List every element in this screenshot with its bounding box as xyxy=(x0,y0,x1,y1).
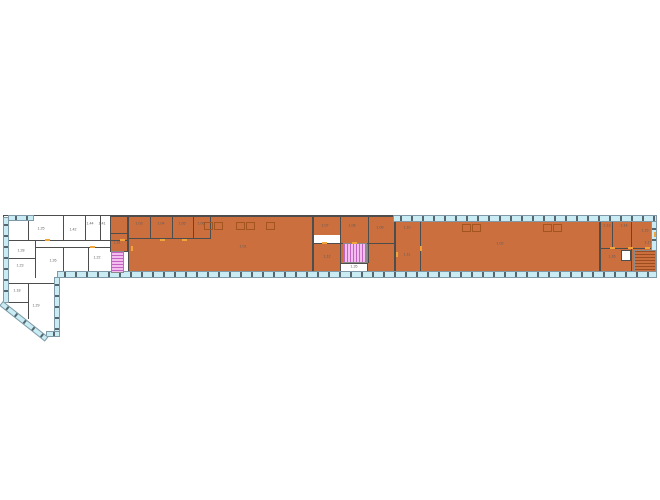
window-mullion-tick xyxy=(284,272,286,277)
window-mullion-tick xyxy=(504,272,506,277)
room-label: 1.17 xyxy=(644,241,651,245)
window-mullion-tick xyxy=(631,216,633,221)
window-mullion-tick xyxy=(97,272,99,277)
door-mark xyxy=(131,246,133,251)
window-mullion-tick xyxy=(174,272,176,277)
window-mullion-tick xyxy=(55,328,59,330)
wall xyxy=(368,216,369,263)
window-mullion-tick xyxy=(53,332,55,336)
window-mullion-tick xyxy=(422,216,424,221)
window-mullion-tick xyxy=(554,216,556,221)
window-mullion-tick xyxy=(251,272,253,277)
wall xyxy=(28,283,29,319)
room-label: 1.02 xyxy=(496,242,503,246)
window-mullion-tick xyxy=(559,272,561,277)
room-label: 1.04 xyxy=(157,222,164,226)
door-mark xyxy=(120,239,125,241)
window-mullion-tick xyxy=(55,295,59,297)
window-mullion-tick xyxy=(55,306,59,308)
wall xyxy=(193,216,194,239)
wall xyxy=(172,216,173,239)
room-label: 1.06 xyxy=(197,222,204,226)
room-label: 1.42 xyxy=(69,228,76,232)
door-mark xyxy=(628,247,633,249)
window-mullion-tick xyxy=(23,320,27,324)
wall xyxy=(631,248,632,272)
window-mullion-tick xyxy=(130,272,132,277)
open-office-east xyxy=(395,221,600,272)
window-mullion-tick xyxy=(515,272,517,277)
window-mullion-tick xyxy=(652,239,656,241)
window-mullion-tick xyxy=(4,235,8,237)
floor-plan: 1.251.421.441.411.261.221.281.231.181.29… xyxy=(0,0,660,500)
room-label: 1.13 xyxy=(603,224,610,228)
window-mullion-tick xyxy=(108,272,110,277)
window-mullion-tick xyxy=(471,272,473,277)
window-mullion-tick xyxy=(55,284,59,286)
window-mullion-tick xyxy=(460,272,462,277)
desk xyxy=(543,224,552,232)
wall xyxy=(612,221,613,249)
window-mullion-tick xyxy=(642,216,644,221)
room-label: 1.18 xyxy=(13,289,20,293)
window-mullion-tick xyxy=(5,306,9,310)
door-mark xyxy=(182,239,187,241)
wall xyxy=(8,240,128,241)
window-mullion-tick xyxy=(493,272,495,277)
door-mark xyxy=(610,247,615,249)
window-mullion-tick xyxy=(4,290,8,292)
room-label: 1.07 xyxy=(321,224,328,228)
room-label: 1.16 xyxy=(608,255,615,259)
window-mullion-tick xyxy=(614,272,616,277)
room-label: 1.11 xyxy=(404,253,411,257)
wall xyxy=(63,215,64,241)
wall xyxy=(85,215,86,241)
room-label: 1.08 xyxy=(348,224,355,228)
window-mullion-tick xyxy=(455,216,457,221)
window-mullion-tick xyxy=(521,216,523,221)
room-label: 1.29 xyxy=(32,304,39,308)
window-mullion-tick xyxy=(240,272,242,277)
wall xyxy=(340,216,341,273)
room-label: 1.25 xyxy=(37,227,44,231)
desk xyxy=(266,222,275,230)
room-label: 1.28 xyxy=(17,249,24,253)
wall xyxy=(631,221,632,249)
desk xyxy=(214,222,223,230)
wall xyxy=(128,238,211,239)
window-mullion-tick xyxy=(548,272,550,277)
window-mullion-tick xyxy=(75,272,77,277)
room-label: 1.01 xyxy=(239,245,246,249)
window-mullion-tick xyxy=(449,272,451,277)
window-mullion-tick xyxy=(537,272,539,277)
window-mullion-tick xyxy=(4,246,8,248)
window-mullion-tick xyxy=(4,279,8,281)
wall xyxy=(35,247,110,248)
window-mullion-tick xyxy=(31,327,35,331)
room-label: 1.31 xyxy=(113,241,120,245)
window-mullion-tick xyxy=(229,272,231,277)
window-mullion-tick xyxy=(532,216,534,221)
room-label: 1.03 xyxy=(135,222,142,226)
room-label: 1.41 xyxy=(98,222,105,226)
desk xyxy=(204,222,213,230)
window-mullion-tick xyxy=(598,216,600,221)
window-band-court xyxy=(54,277,60,334)
window-mullion-tick xyxy=(592,272,594,277)
window-band-top-west xyxy=(8,215,34,221)
wall xyxy=(3,215,395,216)
window-mullion-tick xyxy=(411,216,413,221)
window-mullion-tick xyxy=(499,216,501,221)
window-mullion-tick xyxy=(565,216,567,221)
window-mullion-tick xyxy=(273,272,275,277)
room-label: 1.26 xyxy=(49,259,56,263)
window-mullion-tick xyxy=(4,224,8,226)
window-mullion-tick xyxy=(141,272,143,277)
window-mullion-tick xyxy=(163,272,165,277)
room-label: 1.10 xyxy=(403,226,410,230)
window-mullion-tick xyxy=(526,272,528,277)
window-mullion-tick xyxy=(86,272,88,277)
window-mullion-tick xyxy=(339,272,341,277)
desk xyxy=(472,224,481,232)
desk xyxy=(553,224,562,232)
window-mullion-tick xyxy=(488,216,490,221)
door-mark xyxy=(322,242,327,244)
window-mullion-tick xyxy=(581,272,583,277)
room-label: 1.15 xyxy=(641,229,648,233)
window-mullion-tick xyxy=(15,216,17,220)
window-mullion-tick xyxy=(477,216,479,221)
window-mullion-tick xyxy=(647,272,649,277)
window-mullion-tick xyxy=(576,216,578,221)
window-mullion-tick xyxy=(427,272,429,277)
wall xyxy=(35,240,36,278)
window-mullion-tick xyxy=(207,272,209,277)
page: 1.251.421.441.411.261.221.281.231.181.29… xyxy=(0,0,660,500)
door-mark xyxy=(90,246,95,248)
window-band-top xyxy=(393,215,657,222)
room-label: 1.35 xyxy=(350,265,357,269)
window-mullion-tick xyxy=(317,272,319,277)
door-mark xyxy=(420,246,422,251)
door-mark xyxy=(160,239,165,241)
window-mullion-tick xyxy=(372,272,374,277)
wall xyxy=(100,215,101,241)
room-label: 1.23 xyxy=(16,264,23,268)
window-mullion-tick xyxy=(4,268,8,270)
window-mullion-tick xyxy=(185,272,187,277)
window-mullion-tick xyxy=(609,216,611,221)
door-mark xyxy=(352,242,357,244)
wall xyxy=(110,233,128,234)
service-rooms-west xyxy=(110,216,128,252)
door-mark xyxy=(654,232,656,237)
window-mullion-tick xyxy=(218,272,220,277)
window-mullion-tick xyxy=(4,257,8,259)
desk xyxy=(236,222,245,230)
window-mullion-tick xyxy=(625,272,627,277)
room-label: 1.22 xyxy=(93,256,100,260)
window-mullion-tick xyxy=(587,216,589,221)
staircase-east xyxy=(634,250,656,272)
window-mullion-tick xyxy=(295,272,297,277)
window-mullion-tick xyxy=(152,272,154,277)
desk xyxy=(246,222,255,230)
corridor-notch xyxy=(314,235,340,243)
room-label: 1.44 xyxy=(86,222,93,226)
window-mullion-tick xyxy=(433,216,435,221)
staircase-central xyxy=(343,243,367,263)
door-mark xyxy=(645,247,650,249)
room-label: 1.12 xyxy=(323,255,330,259)
window-mullion-tick xyxy=(196,272,198,277)
window-mullion-tick xyxy=(482,272,484,277)
window-mullion-tick xyxy=(306,272,308,277)
window-mullion-tick xyxy=(405,272,407,277)
window-mullion-tick xyxy=(603,272,605,277)
window-mullion-tick xyxy=(64,272,66,277)
window-mullion-tick xyxy=(394,272,396,277)
window-mullion-tick xyxy=(570,272,572,277)
window-mullion-tick xyxy=(466,216,468,221)
window-mullion-tick xyxy=(438,272,440,277)
window-mullion-tick xyxy=(400,216,402,221)
window-mullion-tick xyxy=(26,216,28,220)
window-mullion-tick xyxy=(636,272,638,277)
window-mullion-tick xyxy=(328,272,330,277)
window-mullion-tick xyxy=(350,272,352,277)
window-band-bottom xyxy=(57,271,657,278)
window-mullion-tick xyxy=(383,272,385,277)
room-label: 1.14 xyxy=(620,224,627,228)
elevator xyxy=(621,250,631,261)
room-label: 1.09 xyxy=(376,226,383,230)
window-mullion-tick xyxy=(543,216,545,221)
window-mullion-tick xyxy=(262,272,264,277)
window-mullion-tick xyxy=(652,228,656,230)
wall xyxy=(3,283,59,284)
window-mullion-tick xyxy=(361,272,363,277)
window-band-west xyxy=(3,217,9,303)
window-mullion-tick xyxy=(416,272,418,277)
window-mullion-tick xyxy=(55,317,59,319)
staircase-west xyxy=(111,251,124,273)
window-mullion-tick xyxy=(40,333,44,337)
window-mullion-tick xyxy=(14,313,18,317)
wall xyxy=(150,216,151,239)
room-label: 1.05 xyxy=(178,222,185,226)
door-mark xyxy=(45,239,50,241)
door-mark xyxy=(396,252,398,257)
window-mullion-tick xyxy=(510,216,512,221)
window-mullion-tick xyxy=(444,216,446,221)
desk xyxy=(462,224,471,232)
window-mullion-tick xyxy=(620,216,622,221)
